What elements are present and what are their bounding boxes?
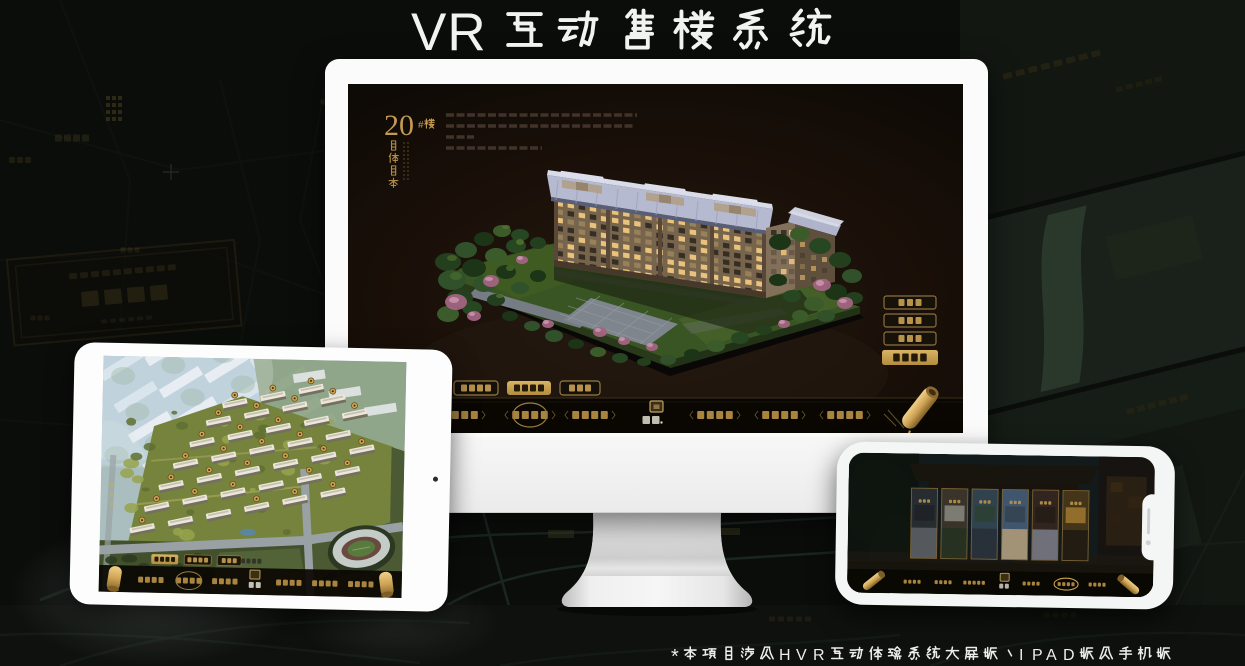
- svg-text:V: V: [796, 647, 807, 664]
- svg-text:VR: VR: [411, 3, 487, 58]
- svg-text:H: H: [779, 647, 791, 664]
- svg-text:20: 20: [384, 109, 414, 142]
- svg-text:I: I: [1019, 647, 1023, 664]
- svg-text:P: P: [1032, 647, 1043, 664]
- svg-text:*: *: [671, 646, 679, 666]
- svg-text:D: D: [1063, 647, 1075, 664]
- svg-text:R: R: [813, 647, 825, 664]
- svg-text:#: #: [418, 120, 424, 131]
- svg-text:A: A: [1046, 647, 1057, 664]
